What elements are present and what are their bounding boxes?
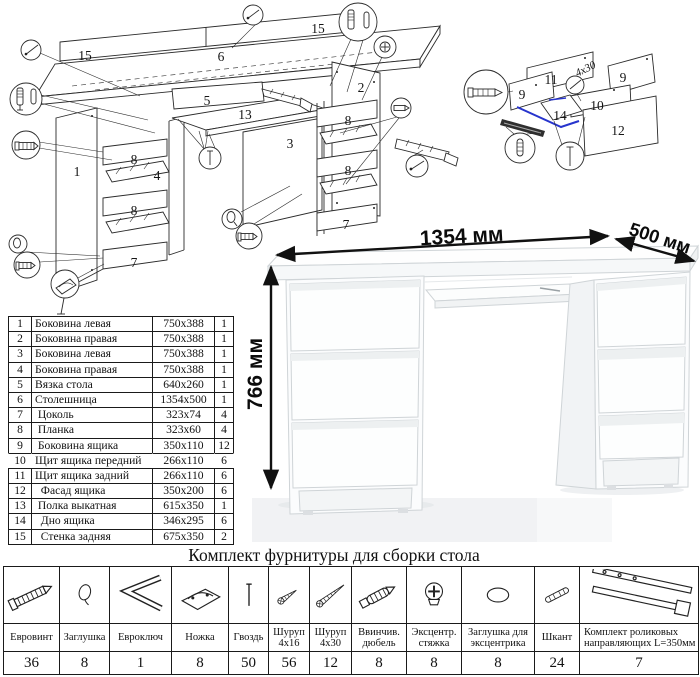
hardware-qty: 24: [535, 652, 580, 675]
dimension-height-label: 766 мм: [244, 338, 267, 410]
cam-cap-icon: [472, 569, 524, 621]
part-number: 9: [8, 438, 31, 453]
hardware-qty: 8: [352, 652, 407, 675]
part-name: Боковина левая: [31, 346, 152, 361]
part-size: 346x295: [152, 513, 214, 528]
parts-table-row: 10 Щит ящика передний 266x110 6: [8, 453, 234, 468]
callout-wooden-dowel-icon: [505, 133, 535, 163]
callout-screw-icon: [406, 155, 428, 177]
panel-side-left: [56, 108, 97, 294]
right-pedestal-side: [556, 280, 596, 489]
part-number: 11: [8, 468, 31, 483]
part-qty: 1: [214, 498, 234, 513]
part-label: 8: [131, 203, 138, 218]
part-qty: 2: [214, 529, 234, 544]
part-label: 15: [311, 21, 325, 36]
parts-table-row: 3 Боковина левая 750x388 1: [8, 346, 234, 361]
hardware-name: Гвоздь: [229, 624, 269, 652]
part-size: 1354x500: [152, 392, 214, 407]
parts-table-row: 2 Боковина правая 750x388 1: [8, 331, 234, 346]
part-qty: 12: [214, 438, 234, 453]
part-qty: 6: [214, 453, 234, 468]
part-qty: 4: [214, 422, 234, 437]
parts-table-row: 12 Фасад ящика 350x200 6: [8, 483, 234, 498]
part-name: Дно ящика: [31, 513, 152, 528]
hardware-names-row: Евровинт Заглушка Евроключ Ножка Гвоздь …: [4, 624, 699, 652]
callout-screw-icon: [566, 76, 584, 94]
hardware-name: Шкант: [535, 624, 580, 652]
parts-table-row: 5 Вязка стола 640x260 1: [8, 377, 234, 392]
hardware-name: Евроключ: [110, 624, 172, 652]
callout-confirmat-icon: [236, 223, 262, 249]
part-qty: 1: [214, 377, 234, 392]
part-size: 350x200: [152, 483, 214, 498]
hardware-qty: 8: [172, 652, 229, 675]
parts-table-row: 6 Столешница 1354x500 1: [8, 392, 234, 407]
callout-dowel-pair-icon: [339, 3, 377, 41]
desk-render: 1354 мм 500 мм 766 мм: [244, 218, 698, 542]
callout-cap-icon: [222, 209, 242, 229]
drawer-front: [291, 351, 419, 420]
hardware-name: Комплект роликовых направляющих L=350мм: [580, 624, 699, 652]
hardware-qty-row: 36 8 1 8 50 56 12 8 8 8 24 7: [4, 652, 699, 675]
part-size: 750x388: [152, 331, 214, 346]
hardware-qty: 1: [110, 652, 172, 675]
part-number: 2: [8, 331, 31, 346]
dimension-width-label: 1354 мм: [419, 223, 504, 251]
callout-cam-lock-icon: [374, 36, 396, 58]
part-label: 14: [553, 108, 567, 123]
part-number: 7: [8, 407, 31, 422]
part-number: 12: [8, 483, 31, 498]
callout-foot-icon: [51, 270, 79, 314]
callout-confirmat-icon: [14, 252, 40, 278]
panel-divider: [243, 118, 322, 228]
part-name: Планка: [31, 422, 152, 437]
part-size: 750x388: [152, 316, 214, 331]
part-qty: 1: [214, 392, 234, 407]
part-number: 14: [8, 513, 31, 528]
part-size: 750x388: [152, 362, 214, 377]
callout-confirmat-icon: [12, 131, 40, 159]
hardware-name: Заглушка для эксцентрика: [462, 624, 535, 652]
callout-cap-icon: [9, 235, 27, 253]
dowel-screw-icon: [353, 569, 406, 621]
part-label: 9: [519, 87, 526, 102]
parts-table: 1 Боковина левая 750x388 1 2 Боковина пр…: [8, 316, 234, 545]
dimension-height: 766 мм: [244, 267, 271, 488]
assembly-instruction-page: 15 6 15 5 13 3 2 1 8 4 8 7 8 8 7: [0, 0, 700, 677]
plinth: [299, 488, 412, 511]
parts-table-row: 9 Боковина ящика 350x110 12: [8, 438, 234, 453]
part-size: 640x260: [152, 377, 214, 392]
hardware-name: Шуруп 4x30: [310, 624, 352, 652]
hardware-qty: 8: [60, 652, 110, 675]
part-qty: 6: [214, 468, 234, 483]
part-size: 323x74: [152, 407, 214, 422]
hardware-qty: 12: [310, 652, 352, 675]
part-number: 1: [8, 316, 31, 331]
part-name: Фасад ящика: [31, 483, 152, 498]
hardware-icons-row: [4, 567, 699, 624]
drawer-front: [290, 280, 420, 351]
part-qty: 1: [214, 362, 234, 377]
hardware-qty: 56: [269, 652, 310, 675]
part-label: 7: [343, 217, 350, 232]
part-number: 13: [8, 498, 31, 513]
cap-icon: [61, 569, 109, 621]
drawer-slides-icon: [581, 569, 697, 621]
part-qty: 1: [214, 316, 234, 331]
hardware-name: Ножка: [172, 624, 229, 652]
hardware-name: Евровинт: [4, 624, 60, 652]
wooden-dowel-icon: [535, 569, 579, 621]
part-size: 266x110: [152, 453, 214, 468]
drawer-assembly-diagram: 4x30 11 9 9 10 12 14: [464, 52, 658, 170]
foot-icon: [173, 569, 228, 621]
part-label: 8: [131, 152, 138, 167]
part-label: 13: [238, 107, 252, 122]
part-name: Боковина левая: [31, 316, 152, 331]
part-name: Столешница: [31, 392, 152, 407]
part-label: 11: [545, 72, 558, 87]
part-number: 8: [8, 422, 31, 437]
part-name: Полка выкатная: [31, 498, 152, 513]
part-label: 12: [611, 123, 625, 138]
part-number: 15: [8, 529, 31, 544]
parts-table-row: 4 Боковина правая 750x388 1: [8, 362, 234, 377]
drawer-rail: [106, 212, 169, 233]
hardware-kit-table: Евровинт Заглушка Евроключ Ножка Гвоздь …: [3, 566, 699, 675]
cam-lock-icon: [409, 569, 459, 621]
hex-key-icon: [111, 569, 171, 621]
hardware-qty: 36: [4, 652, 60, 675]
part-size: 615x350: [152, 498, 214, 513]
callout-dowel-pair-icon: [10, 83, 42, 115]
hardware-qty: 7: [580, 652, 699, 675]
hardware-name: Шуруп 4x16: [269, 624, 310, 652]
part-name: Цоколь: [31, 407, 152, 422]
part-size: 323x60: [152, 422, 214, 437]
part-label: 5: [204, 93, 211, 108]
part-number: 6: [8, 392, 31, 407]
part-label: 9: [620, 70, 627, 85]
hardware-name: Заглушка: [60, 624, 110, 652]
part-qty: 6: [214, 513, 234, 528]
part-label: 3: [287, 136, 294, 151]
part-number: 3: [8, 346, 31, 361]
callout-nail-icon: [243, 5, 263, 25]
part-number: 10: [8, 453, 31, 468]
part-label: 6: [218, 49, 225, 64]
part-size: 675x350: [152, 529, 214, 544]
part-name: Боковина правая: [31, 362, 152, 377]
screw-4x30-icon: [311, 569, 351, 621]
part-name: Стенка задняя: [31, 529, 152, 544]
part-size: 350x110: [152, 438, 214, 453]
part-label: 2: [358, 80, 365, 95]
callout-screw-icon: [199, 147, 221, 169]
part-qty: 1: [214, 346, 234, 361]
hardware-name: Ввинчив. дюбель: [352, 624, 407, 652]
confirmat-screw-icon: [5, 569, 59, 621]
callout-confirmat-icon: [391, 98, 411, 118]
parts-table-row: 13 Полка выкатная 615x350 1: [8, 498, 234, 513]
part-name: Щит ящика задний: [31, 468, 152, 483]
part-label: 8: [345, 113, 352, 128]
panel-inner-left: [169, 117, 184, 255]
hardware-name: Эксцентр. стяжка: [407, 624, 462, 652]
part-name: Боковина ящика: [31, 438, 152, 453]
hardware-qty: 50: [229, 652, 269, 675]
part-label: 15: [78, 48, 92, 63]
part-qty: 6: [214, 483, 234, 498]
hardware-kit-title: Комплект фурнитуры для сборки стола: [0, 546, 668, 565]
screw-4x16-icon: [270, 569, 309, 621]
part-name: Боковина правая: [31, 331, 152, 346]
parts-table-row: 15 Стенка задняя 675x350 2: [8, 529, 234, 544]
part-size: 266x110: [152, 468, 214, 483]
part-label: 8: [345, 163, 352, 178]
part-label: 7: [131, 255, 138, 270]
part-qty: 1: [214, 331, 234, 346]
part-size: 750x388: [152, 346, 214, 361]
callout-nail-icon: [21, 40, 41, 60]
callout-nail-icon: [556, 142, 584, 170]
hardware-qty: 8: [462, 652, 535, 675]
part-label: 1: [74, 164, 81, 179]
part-qty: 4: [214, 407, 234, 422]
part-label: 10: [590, 98, 604, 113]
part-number: 4: [8, 362, 31, 377]
part-label: 4: [154, 168, 161, 183]
parts-table-row: 14 Дно ящика 346x295 6: [8, 513, 234, 528]
hardware-qty: 8: [407, 652, 462, 675]
part-name: Щит ящика передний: [31, 453, 152, 468]
parts-table-row: 8 Планка 323x60 4: [8, 422, 234, 437]
parts-table-row: 11 Щит ящика задний 266x110 6: [8, 468, 234, 483]
drawer-front: [292, 420, 418, 488]
parts-table-row: 1 Боковина левая 750x388 1: [8, 316, 234, 331]
callout-confirmat-icon: [464, 70, 508, 114]
parts-table-row: 7 Цоколь 323x74 4: [8, 407, 234, 422]
plinth: [603, 458, 679, 486]
part-name: Вязка стола: [31, 377, 152, 392]
part-number: 5: [8, 377, 31, 392]
nail-icon: [230, 569, 268, 621]
